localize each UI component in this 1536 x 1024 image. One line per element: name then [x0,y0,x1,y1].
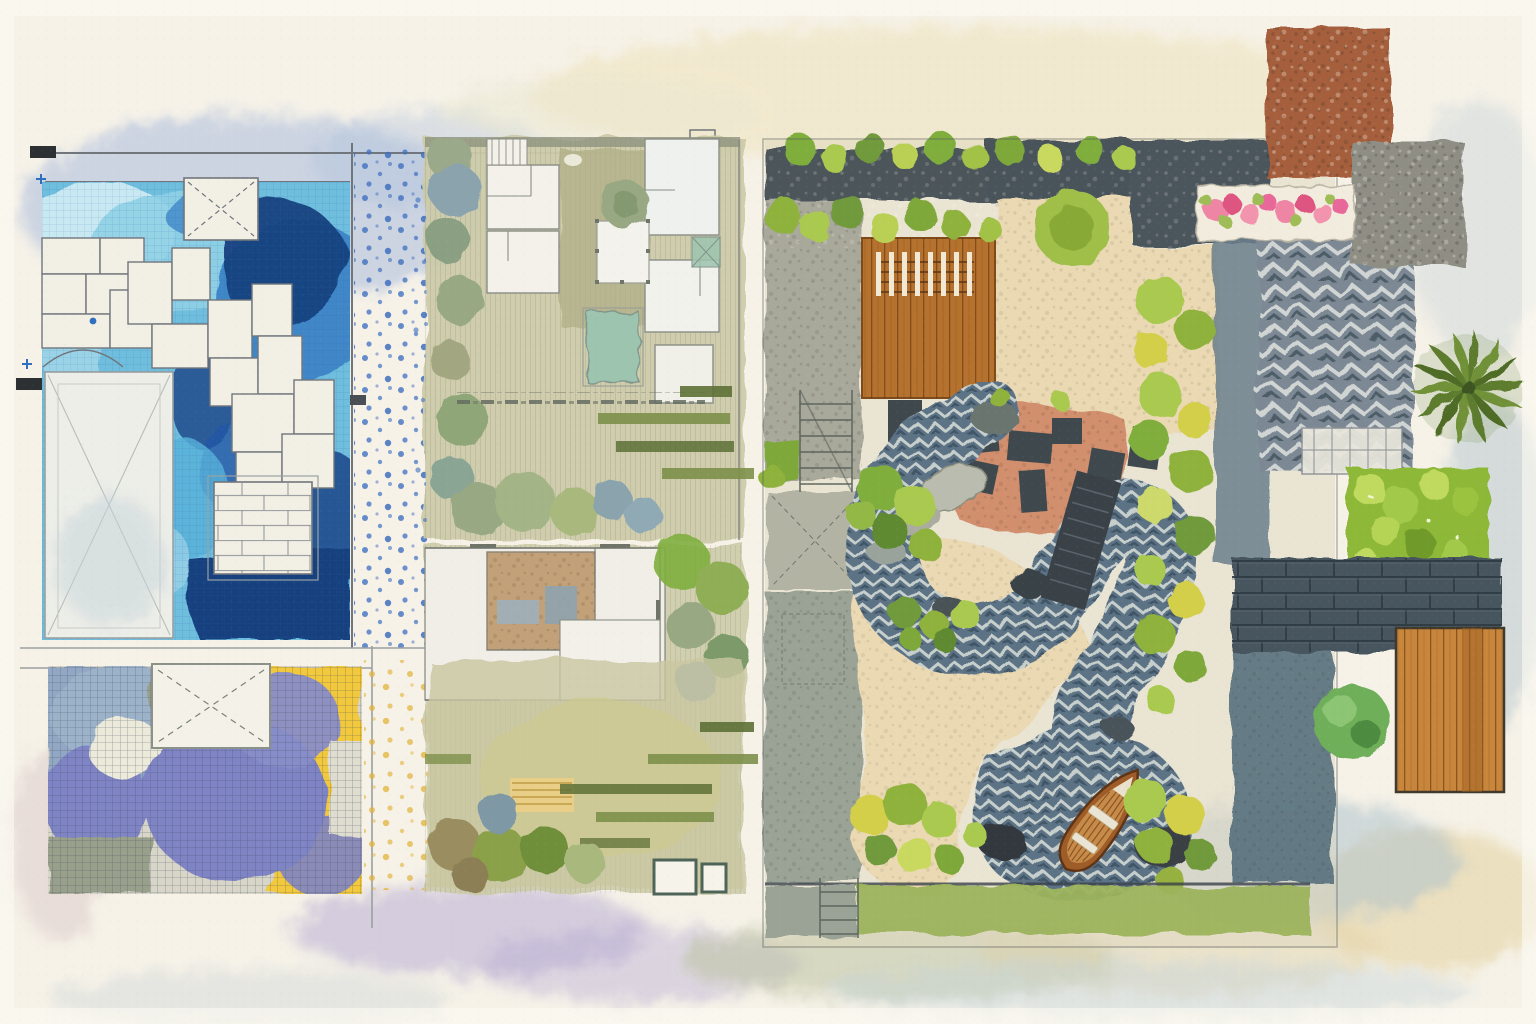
painting-canvas [0,0,1536,1024]
watercolor-plan-collage [0,0,1536,1024]
paper-grain [0,0,1536,1024]
